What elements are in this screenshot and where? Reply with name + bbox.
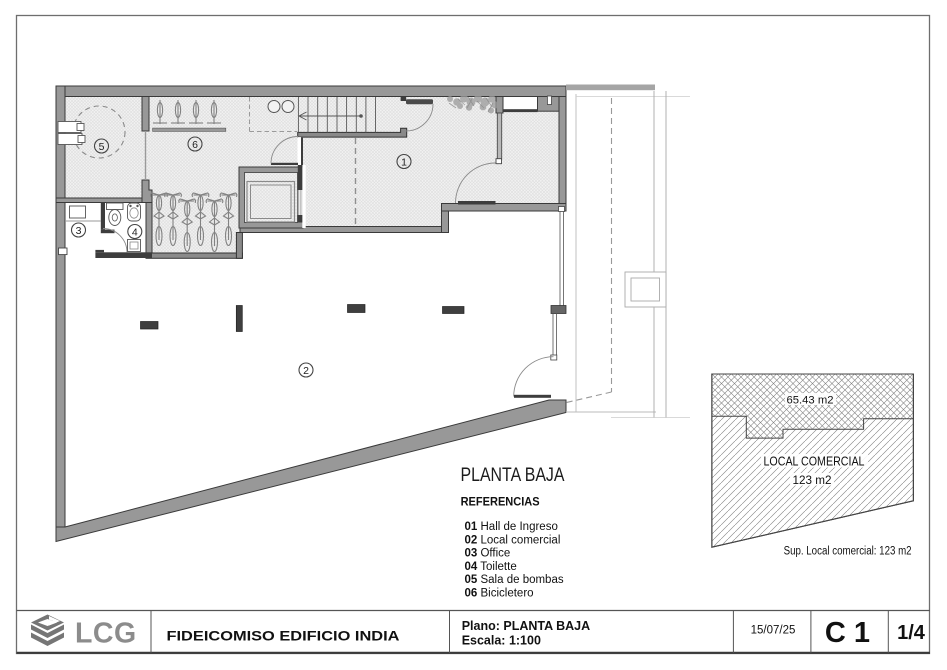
svg-text:Plano: PLANTA BAJA: Plano: PLANTA BAJA <box>462 619 590 633</box>
svg-text:06 Bicicletero: 06 Bicicletero <box>465 588 534 600</box>
svg-text:1: 1 <box>401 156 407 168</box>
svg-text:REFERENCIAS: REFERENCIAS <box>461 497 540 509</box>
svg-text:123 m2: 123 m2 <box>793 473 832 487</box>
svg-text:3: 3 <box>76 225 82 237</box>
svg-text:4: 4 <box>132 226 138 238</box>
svg-text:Sup. Local comercial: 123 m2: Sup. Local comercial: 123 m2 <box>784 546 912 558</box>
svg-text:C 1: C 1 <box>825 617 870 649</box>
svg-text:2: 2 <box>303 365 309 377</box>
svg-text:LOCAL COMERCIAL: LOCAL COMERCIAL <box>764 454 865 469</box>
svg-text:PLANTA BAJA: PLANTA BAJA <box>461 464 565 486</box>
svg-text:FIDEICOMISO EDIFICIO INDIA: FIDEICOMISO EDIFICIO INDIA <box>167 628 400 644</box>
svg-text:01 Hall de Ingreso: 01 Hall de Ingreso <box>465 521 558 533</box>
svg-text:15/07/25: 15/07/25 <box>751 625 796 637</box>
svg-text:Escala: 1:100: Escala: 1:100 <box>462 633 541 647</box>
svg-text:02 Local comercial: 02 Local comercial <box>465 534 561 546</box>
svg-text:5: 5 <box>99 141 105 153</box>
svg-text:04 Toilette: 04 Toilette <box>465 561 517 573</box>
svg-text:03 Office: 03 Office <box>465 548 511 560</box>
svg-text:05 Sala de bombas: 05 Sala de bombas <box>465 574 564 586</box>
svg-text:1/4: 1/4 <box>897 622 926 644</box>
svg-text:65.43 m2: 65.43 m2 <box>787 395 834 407</box>
svg-text:LCG: LCG <box>75 618 137 650</box>
svg-text:6: 6 <box>192 139 198 151</box>
